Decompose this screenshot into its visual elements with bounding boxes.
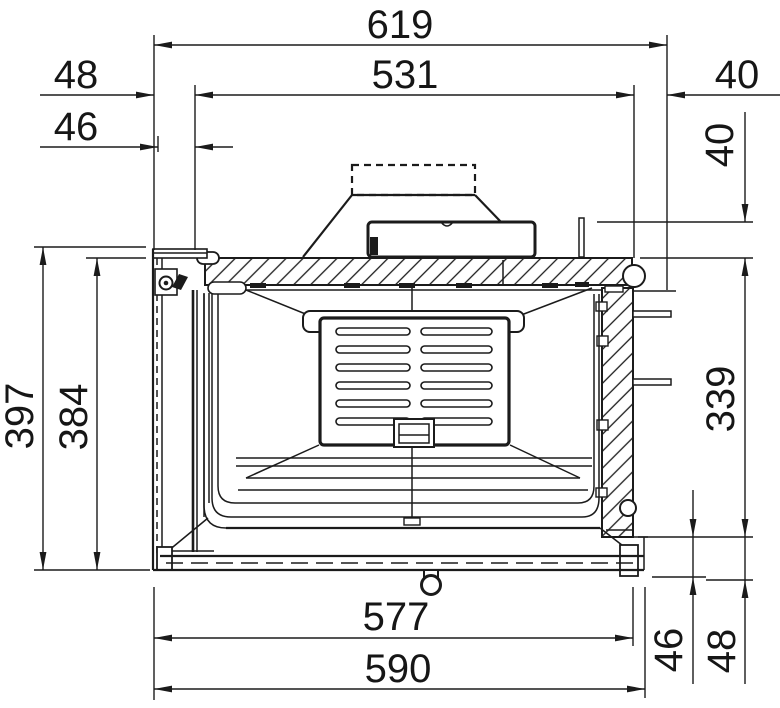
smoke-dome-right-slope <box>475 195 501 222</box>
stove-body <box>153 165 676 595</box>
firebox-top-right-edge <box>516 288 592 317</box>
panel-slot <box>336 328 410 335</box>
dim-collar-rise: 40 <box>698 112 745 222</box>
damper-stop-post <box>370 237 378 255</box>
dim-base-rise-inner: 46 <box>647 490 693 684</box>
firebox-bottom-left-edge <box>246 445 319 478</box>
dim-label-40-top: 40 <box>715 53 760 97</box>
flue-spigot-hidden-outline <box>352 165 475 195</box>
latch-knob <box>422 576 441 595</box>
left-lining-outer <box>204 294 226 528</box>
panel-slot <box>421 400 492 407</box>
dim-top-overall: 619 <box>154 3 667 47</box>
smoke-dome-left-slope <box>303 195 352 257</box>
dim-label-48-bottom: 48 <box>700 629 744 674</box>
panel-slot <box>336 346 410 353</box>
hinge-pin-center <box>164 281 169 286</box>
top-corner-bead <box>623 265 645 287</box>
air-inlet-box-inner <box>399 424 429 443</box>
dim-label-619: 619 <box>367 3 434 47</box>
panel-slot <box>336 400 410 407</box>
left-lining-mid <box>212 294 231 517</box>
front-foot <box>157 547 172 570</box>
left-lining-inner <box>218 294 235 503</box>
dim-front-height-body: 384 <box>52 258 97 570</box>
rear-tab <box>633 311 671 317</box>
panel-slot <box>336 364 410 371</box>
dim-label-46-top: 46 <box>54 105 99 149</box>
wall-notch <box>596 488 607 497</box>
top-plate-section <box>205 258 632 285</box>
panel-slot <box>421 346 492 353</box>
plate-lug <box>399 283 415 288</box>
dim-front-offset-glass: 46 <box>40 105 233 149</box>
wall-top-lug <box>605 286 623 292</box>
panel-slot <box>421 328 492 335</box>
panel-slot <box>336 382 410 389</box>
dim-base-depth-overall: 590 <box>154 647 645 691</box>
dim-label-339: 339 <box>699 366 743 433</box>
dim-label-397: 397 <box>0 383 42 450</box>
dim-rear-wall-height: 339 <box>699 258 745 537</box>
plate-lug <box>250 283 266 288</box>
dim-base-rise-outer: 48 <box>700 537 745 684</box>
firebox-top-left-edge <box>246 290 313 317</box>
fireplace-section-drawing: 619 48 531 40 46 40 339 <box>0 0 780 708</box>
wall-notch <box>596 302 607 311</box>
inner-front-bead <box>208 282 246 294</box>
dim-label-48-top: 48 <box>54 53 99 97</box>
dim-label-40-right: 40 <box>698 123 742 168</box>
firebox-bottom-right-edge <box>510 445 580 478</box>
dim-rear-overhang: 40 <box>667 53 780 97</box>
panel-slot <box>421 364 492 371</box>
plate-lug <box>542 283 558 288</box>
plate-lug <box>456 283 472 288</box>
plate-lug <box>575 282 589 287</box>
dim-label-384: 384 <box>52 384 96 451</box>
dim-front-height-overall: 397 <box>0 247 43 570</box>
right-lining-inner <box>578 294 594 503</box>
damper-housing <box>368 222 535 257</box>
dim-front-offset-outer: 48 <box>40 53 154 97</box>
drawing-page: 619 48 531 40 46 40 339 <box>0 0 780 708</box>
dim-base-depth-inner: 577 <box>154 595 633 639</box>
center-rod-foot <box>404 518 420 525</box>
rear-stud-post <box>579 218 584 257</box>
dim-label-577: 577 <box>363 595 430 639</box>
right-lining-mid <box>582 294 599 517</box>
plate-lug <box>344 283 360 288</box>
bottom-corner-bead <box>620 500 636 516</box>
dim-label-46-bottom: 46 <box>647 628 691 673</box>
rear-tab <box>633 379 671 385</box>
rear-foot <box>620 545 638 576</box>
dim-label-531: 531 <box>372 53 439 97</box>
dim-top-inner: 531 <box>195 53 634 97</box>
panel-slot <box>421 382 492 389</box>
dim-label-590: 590 <box>365 647 432 691</box>
